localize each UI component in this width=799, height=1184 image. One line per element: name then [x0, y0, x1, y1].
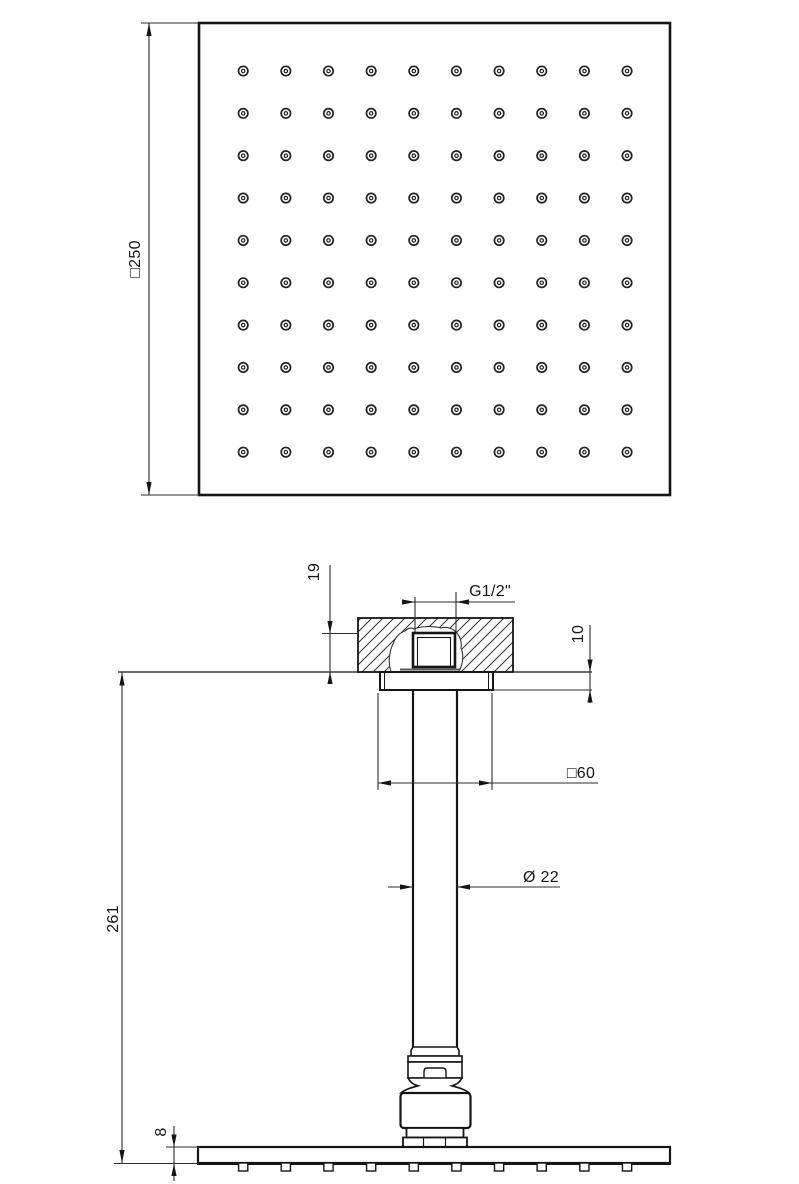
nozzle-hole — [324, 109, 333, 118]
nozzle-hole — [452, 447, 461, 456]
nozzle-hole — [622, 109, 631, 118]
nozzle-hole — [537, 236, 546, 245]
nozzle-profile — [537, 1163, 546, 1171]
nozzle-hole — [366, 405, 375, 414]
nozzle-hole — [580, 320, 589, 329]
nozzle-hole — [537, 109, 546, 118]
nozzle-profile — [622, 1163, 631, 1171]
dim-label-height-261: 261 — [105, 905, 123, 933]
nozzle-hole — [537, 447, 546, 456]
nozzle-hole — [281, 66, 290, 75]
swivel-housing — [401, 1093, 471, 1128]
nozzle-hole — [324, 236, 333, 245]
nozzle-hole — [580, 193, 589, 202]
nozzle-hole — [324, 278, 333, 287]
nozzle-hole — [409, 66, 418, 75]
nozzle-hole — [281, 278, 290, 287]
nozzle-hole — [366, 236, 375, 245]
nozzle-hole — [281, 236, 290, 245]
nozzle-hole — [324, 447, 333, 456]
dim-8 — [166, 1126, 200, 1181]
nozzle-hole — [239, 236, 248, 245]
nozzle-profile — [409, 1163, 418, 1171]
connector-clip-tab — [424, 1068, 446, 1078]
nozzle-hole — [494, 363, 503, 372]
nozzle-hole — [239, 447, 248, 456]
nozzle-hole — [409, 447, 418, 456]
nozzle-hole — [366, 66, 375, 75]
nozzle-hole — [281, 363, 290, 372]
nozzle-profile — [452, 1163, 461, 1171]
nozzle-hole — [537, 363, 546, 372]
nozzle-hole — [494, 193, 503, 202]
nozzle-profile — [495, 1163, 504, 1171]
nozzle-hole — [324, 193, 333, 202]
nozzle-hole — [409, 278, 418, 287]
swivel-flange — [407, 1128, 464, 1138]
nozzle-hole — [494, 236, 503, 245]
nozzle-hole — [409, 151, 418, 160]
nozzle-hole — [622, 405, 631, 414]
nozzle-hole — [580, 236, 589, 245]
connector-ring — [408, 1056, 462, 1062]
nozzle-hole — [494, 320, 503, 329]
nozzle-hole — [366, 447, 375, 456]
nozzle-hole — [452, 109, 461, 118]
dim-label-embed-depth-19: 19 — [306, 563, 324, 581]
nozzle-hole — [281, 447, 290, 456]
nozzle-hole — [409, 193, 418, 202]
nozzle-hole — [452, 151, 461, 160]
nozzle-hole — [580, 405, 589, 414]
nozzle-hole — [409, 109, 418, 118]
nozzle-hole — [452, 320, 461, 329]
nozzle-hole — [622, 363, 631, 372]
nozzle-hole — [622, 236, 631, 245]
nozzle-profile — [281, 1163, 290, 1171]
nozzle-hole — [537, 66, 546, 75]
nozzle-hole — [239, 278, 248, 287]
nozzle-hole — [580, 363, 589, 372]
nozzle-hole — [239, 320, 248, 329]
nozzle-hole — [622, 320, 631, 329]
shower-plate-profile — [198, 1147, 670, 1163]
nozzle-hole — [366, 193, 375, 202]
nozzle-hole — [409, 320, 418, 329]
nozzle-hole — [452, 363, 461, 372]
technical-drawing-canvas — [0, 0, 799, 1184]
nozzle-profile — [367, 1163, 376, 1171]
nozzle-hole — [537, 278, 546, 287]
nozzle-hole — [281, 193, 290, 202]
nozzle-hole — [324, 363, 333, 372]
dim-60 — [378, 693, 598, 790]
dim-261 — [114, 672, 199, 1164]
nozzle-hole — [580, 447, 589, 456]
nozzle-hole — [622, 66, 631, 75]
nozzle-hole — [494, 447, 503, 456]
nozzle-hole — [409, 405, 418, 414]
nozzle-hole — [494, 278, 503, 287]
nozzle-hole — [366, 151, 375, 160]
dim-label-plate-thickness-8: 8 — [153, 1127, 171, 1136]
nozzle-hole — [580, 151, 589, 160]
top-view — [199, 23, 670, 495]
nozzle-hole — [580, 109, 589, 118]
nozzle-hole — [239, 66, 248, 75]
nozzle-hole — [409, 236, 418, 245]
nozzle-hole — [281, 109, 290, 118]
nozzle-hole — [622, 447, 631, 456]
nozzle-profile — [324, 1163, 333, 1171]
nozzle-hole — [239, 193, 248, 202]
nozzle-hole — [324, 320, 333, 329]
nozzle-hole — [452, 66, 461, 75]
nozzle-hole — [494, 151, 503, 160]
connector-collar — [411, 1047, 459, 1056]
dim-label-escutcheon-thickness-10: 10 — [570, 625, 588, 643]
ceiling-escutcheon — [380, 672, 493, 690]
nozzle-hole — [239, 109, 248, 118]
nozzle-hole — [366, 363, 375, 372]
nozzle-hole — [494, 405, 503, 414]
nozzle-hole — [281, 151, 290, 160]
dim-label-escutcheon-size-60: □60 — [567, 765, 595, 783]
nozzle-hole — [409, 363, 418, 372]
nozzle-hole — [239, 405, 248, 414]
nozzle-hole — [239, 151, 248, 160]
dim-label-thread-g12: G1/2" — [469, 583, 511, 601]
technical-drawing-page: □250 19 G1/2" 10 □60 Ø 22 261 8 — [0, 0, 799, 1184]
nozzle-hole — [580, 66, 589, 75]
nozzle-hole — [622, 151, 631, 160]
nozzle-hole — [452, 278, 461, 287]
nozzle-hole — [494, 66, 503, 75]
nozzle-hole — [366, 278, 375, 287]
nozzle-hole — [366, 109, 375, 118]
dim-19 — [322, 565, 358, 684]
nozzle-hole — [622, 278, 631, 287]
dim-250 — [141, 23, 199, 495]
nozzle-hole — [452, 405, 461, 414]
thread-socket-outline — [413, 633, 455, 667]
nozzle-hole — [494, 109, 503, 118]
nozzle-hole — [537, 320, 546, 329]
nozzle-hole — [324, 405, 333, 414]
nozzle-hole — [537, 151, 546, 160]
nozzle-hole — [537, 405, 546, 414]
nozzle-hole — [281, 405, 290, 414]
dim-label-size-250: □250 — [127, 240, 145, 278]
nozzle-hole — [324, 151, 333, 160]
swivel-waist — [401, 1078, 469, 1093]
nozzle-profile — [580, 1163, 589, 1171]
shower-head-face-outline — [199, 23, 670, 495]
nozzle-hole — [622, 193, 631, 202]
nozzle-hole — [537, 193, 546, 202]
nozzle-hole — [452, 236, 461, 245]
nozzle-hole — [366, 320, 375, 329]
nozzle-hole — [239, 363, 248, 372]
nozzle-profile — [239, 1163, 248, 1171]
nozzle-hole — [324, 66, 333, 75]
nozzle-hole — [580, 278, 589, 287]
nozzle-hole — [281, 320, 290, 329]
dim-label-arm-diameter-22: Ø 22 — [523, 869, 559, 887]
nozzle-hole — [452, 193, 461, 202]
